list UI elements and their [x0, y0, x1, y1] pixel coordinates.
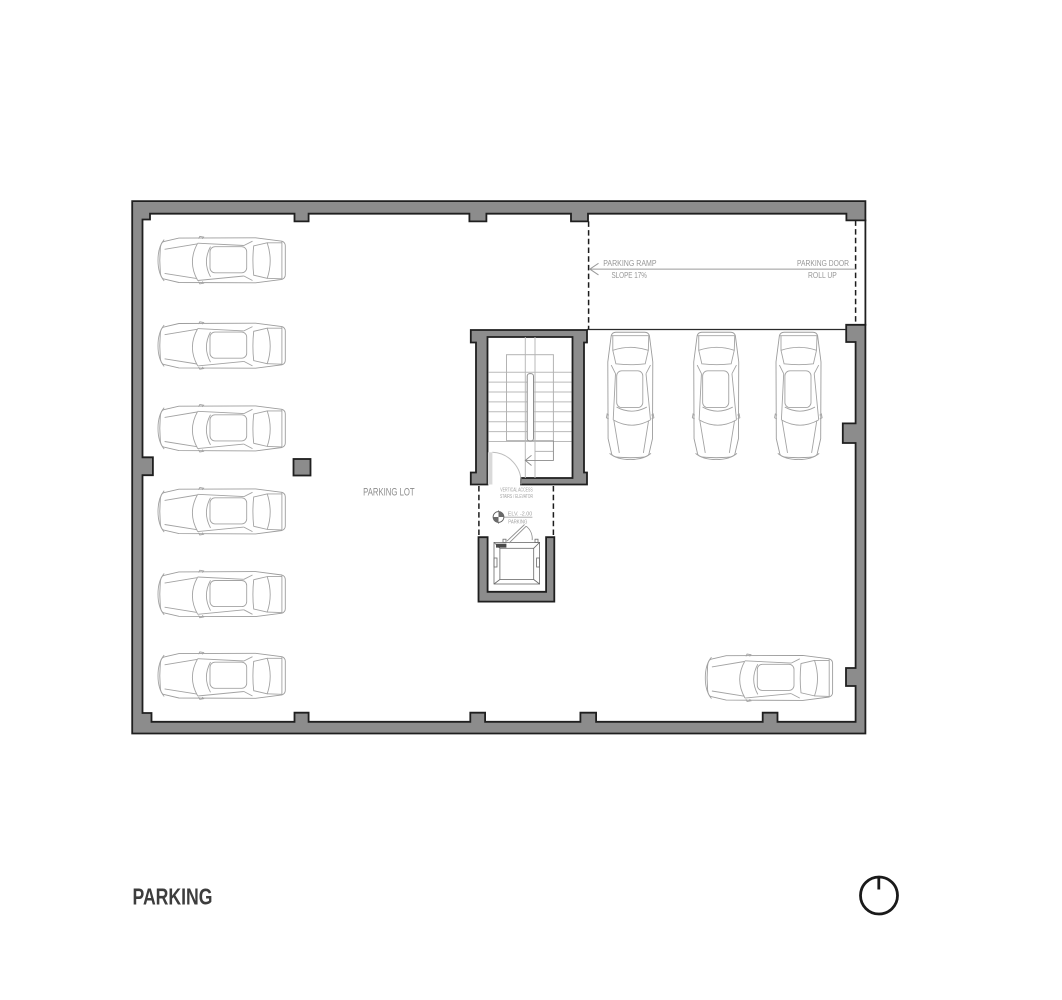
svg-text:PARKING: PARKING	[133, 883, 213, 909]
svg-text:PARKING RAMP: PARKING RAMP	[603, 258, 657, 268]
svg-text:SLOPE 17%: SLOPE 17%	[611, 270, 647, 280]
svg-text:VERTICAL ACCESS: VERTICAL ACCESS	[500, 487, 533, 493]
svg-text:ELV. -2.00: ELV. -2.00	[508, 512, 533, 518]
svg-text:STAIRS / ELEVATOR: STAIRS / ELEVATOR	[500, 494, 533, 500]
svg-text:ROLL UP: ROLL UP	[808, 270, 837, 280]
svg-text:PARKING DOOR: PARKING DOOR	[797, 258, 849, 268]
svg-text:PARKING LOT: PARKING LOT	[363, 487, 415, 499]
